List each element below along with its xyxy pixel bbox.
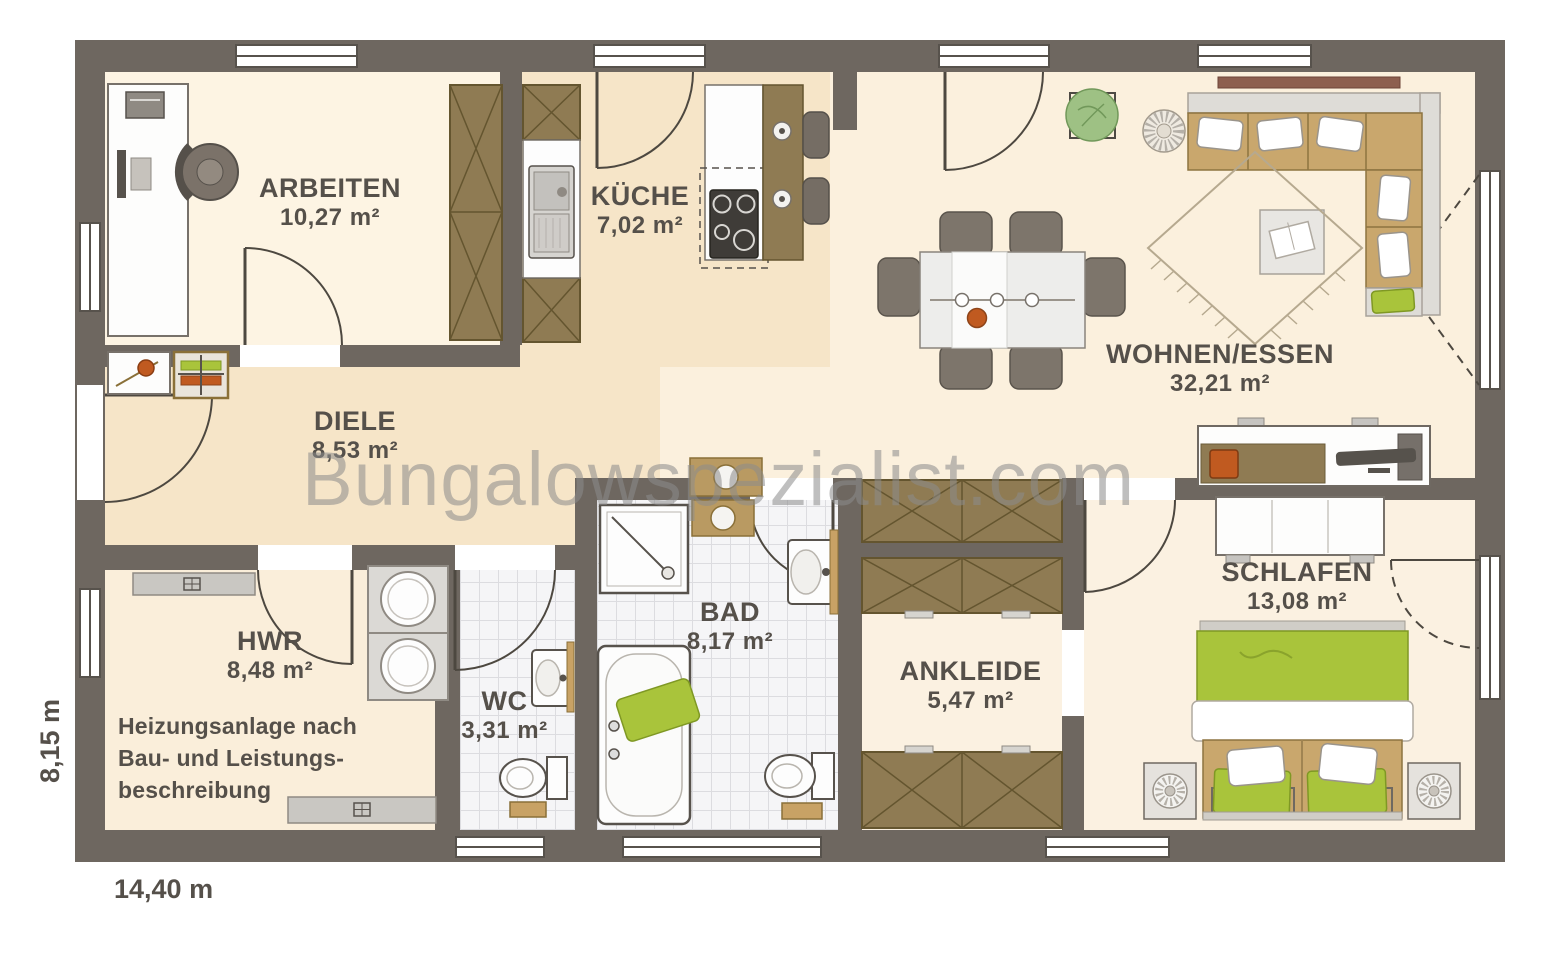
room-area: 10,27 m² bbox=[230, 204, 430, 233]
room-name: WOHNEN/ESSEN bbox=[1106, 339, 1334, 369]
room-name: ARBEITEN bbox=[259, 173, 401, 203]
passage-ankleide-schlafen bbox=[1062, 630, 1084, 716]
wall-ankleide-nord bbox=[862, 542, 1062, 558]
room-name: KÜCHE bbox=[591, 181, 690, 211]
window-bad-bottom bbox=[622, 836, 822, 858]
room-name: BAD bbox=[700, 597, 760, 627]
terrace-door-schlafen-right bbox=[1479, 555, 1501, 700]
wall-wohnen-schlafen-ecke bbox=[1468, 478, 1475, 500]
hwr-note: Heizungsanlage nach Bau- und Leistungs- … bbox=[118, 710, 358, 807]
window-arbeiten-left bbox=[79, 222, 101, 312]
door-opening-wc bbox=[455, 545, 555, 570]
room-area: 5,47 m² bbox=[878, 687, 1063, 716]
room-name: WC bbox=[482, 686, 528, 716]
room-label-ankleide: ANKLEIDE 5,47 m² bbox=[878, 655, 1063, 716]
terrace-door-wohnen-right bbox=[1479, 170, 1501, 390]
watermark: Bungalowspezialist.com bbox=[302, 436, 1135, 523]
window-schlafen-bottom bbox=[1045, 836, 1170, 858]
window-wohnen-top bbox=[1197, 44, 1312, 68]
wall-diele-sued-b bbox=[352, 545, 455, 570]
entry-door-opening bbox=[77, 385, 103, 500]
room-name: ANKLEIDE bbox=[899, 656, 1041, 686]
room-label-schlafen: SCHLAFEN 13,08 m² bbox=[1192, 556, 1402, 617]
room-label-hwr: HWR 8,48 m² bbox=[190, 625, 350, 686]
room-area: 3,31 m² bbox=[432, 717, 577, 746]
door-wohnen-top bbox=[938, 44, 1050, 68]
room-area: 8,17 m² bbox=[655, 628, 805, 657]
wall-wc-bad bbox=[575, 500, 597, 830]
room-label-wc: WC 3,31 m² bbox=[432, 685, 577, 746]
room-area: 8,48 m² bbox=[190, 657, 350, 686]
wall-arbeiten-diele-b bbox=[340, 345, 520, 367]
wall-arbeiten-kueche bbox=[500, 72, 522, 345]
door-opening-arbeiten bbox=[240, 345, 340, 367]
room-area: 13,08 m² bbox=[1192, 588, 1402, 617]
wall-stub-kueche bbox=[833, 72, 857, 130]
room-area: 7,02 m² bbox=[555, 212, 725, 241]
wall-arbeiten-diele-a bbox=[105, 345, 240, 367]
wall-ankleide-schlafen-b bbox=[1062, 716, 1084, 830]
window-hwr-left bbox=[79, 588, 101, 678]
room-label-kueche: KÜCHE 7,02 m² bbox=[555, 180, 725, 241]
wall-bad-ankleide bbox=[838, 500, 862, 830]
room-area: 32,21 m² bbox=[1095, 370, 1345, 399]
wall-outer-right bbox=[1475, 40, 1505, 862]
floor-plan: ARBEITEN 10,27 m² KÜCHE 7,02 m² WOHNEN/E… bbox=[0, 0, 1548, 972]
floor-schlafen bbox=[1084, 500, 1475, 830]
room-name: DIELE bbox=[314, 406, 396, 436]
window-arbeiten-top bbox=[235, 44, 358, 68]
door-opening-hwr bbox=[258, 545, 352, 570]
room-name: HWR bbox=[237, 626, 303, 656]
floor-bad bbox=[597, 500, 838, 830]
wall-diele-sued-a bbox=[105, 545, 258, 570]
floor-wohnen bbox=[830, 72, 1475, 478]
room-name: SCHLAFEN bbox=[1222, 557, 1373, 587]
room-label-bad: BAD 8,17 m² bbox=[655, 596, 805, 657]
room-label-arbeiten: ARBEITEN 10,27 m² bbox=[230, 172, 430, 233]
window-wc-bottom bbox=[455, 836, 545, 858]
door-kueche-top bbox=[593, 44, 706, 68]
dimension-height: 8,15 m bbox=[35, 679, 65, 803]
dimension-width: 14,40 m bbox=[114, 874, 213, 905]
room-label-wohnen-essen: WOHNEN/ESSEN 32,21 m² bbox=[1095, 338, 1345, 399]
wall-wohnen-schlafen bbox=[1175, 478, 1468, 500]
